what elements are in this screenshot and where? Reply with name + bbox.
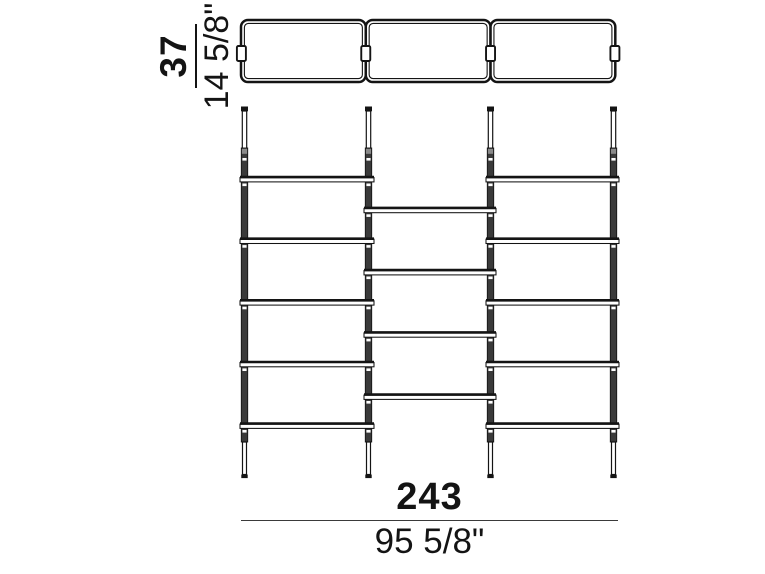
post-joint-notch <box>366 430 370 433</box>
post-column <box>610 148 616 442</box>
post-joint-notch <box>611 430 615 433</box>
post-joint-notch <box>366 277 370 280</box>
post-joint-notch <box>488 339 492 342</box>
post-leg <box>612 442 616 475</box>
plan-post-connector <box>361 46 370 61</box>
post-sleeve-joint <box>488 149 493 154</box>
post-top-cap <box>241 107 248 112</box>
post-joint-notch <box>366 214 370 217</box>
post-top-cap <box>365 107 372 112</box>
post-joint-notch <box>366 158 370 161</box>
plan-view <box>237 20 620 82</box>
post-joint-notch <box>488 214 492 217</box>
post-upper-rod <box>366 111 370 151</box>
post-sleeve-joint <box>242 149 247 154</box>
post-joint-notch <box>366 339 370 342</box>
post-joint-notch <box>242 184 246 187</box>
post-column <box>241 148 247 442</box>
post-leg <box>489 442 493 475</box>
post-joint-notch <box>488 307 492 310</box>
post-joint-notch <box>488 277 492 280</box>
plan-post-connector <box>610 46 619 61</box>
post-joint-notch <box>611 307 615 310</box>
post-joint-notch <box>488 245 492 248</box>
width-inches-value: 95 5/8" <box>241 521 618 559</box>
plan-post-connector <box>486 46 495 61</box>
post-sleeve-joint <box>366 149 371 154</box>
post-joint-notch <box>242 158 246 161</box>
post-joint-notch <box>366 184 370 187</box>
post-top-cap <box>487 107 494 112</box>
post-upper-rod <box>611 111 615 151</box>
post-joint-notch <box>366 368 370 371</box>
post-joint-notch <box>488 158 492 161</box>
depth-inches-value: 14 5/8" <box>197 3 234 110</box>
post-leg <box>367 442 371 475</box>
plan-post-connector <box>237 46 246 61</box>
post-joint-notch <box>242 368 246 371</box>
post-joint-notch <box>488 401 492 404</box>
depth-cm-value: 37 <box>155 24 197 87</box>
post-joint-notch <box>242 430 246 433</box>
post-joint-notch <box>242 307 246 310</box>
depth-dimension-label: 37 14 5/8" <box>152 0 236 126</box>
plan-module-outer <box>241 20 366 82</box>
post-joint-notch <box>366 245 370 248</box>
post-leg <box>243 442 247 475</box>
post-joint-notch <box>488 430 492 433</box>
plan-module-outer <box>491 20 616 82</box>
technical-drawing-canvas: 37 14 5/8" 243 95 5/8" <box>0 0 765 574</box>
post-joint-notch <box>242 245 246 248</box>
front-elevation-view <box>240 107 619 479</box>
post-upper-rod <box>242 111 246 151</box>
post-sleeve-joint <box>611 149 616 154</box>
post-joint-notch <box>488 184 492 187</box>
post-top-cap <box>610 107 617 112</box>
post-joint-notch <box>611 245 615 248</box>
post-joint-notch <box>366 307 370 310</box>
post-joint-notch <box>611 184 615 187</box>
post-upper-rod <box>488 111 492 151</box>
width-dimension-label: 243 95 5/8" <box>241 478 618 559</box>
width-cm-value: 243 <box>241 478 618 521</box>
post-joint-notch <box>611 368 615 371</box>
post-joint-notch <box>488 368 492 371</box>
post-joint-notch <box>366 401 370 404</box>
plan-module-outer <box>366 20 491 82</box>
post-joint-notch <box>611 158 615 161</box>
